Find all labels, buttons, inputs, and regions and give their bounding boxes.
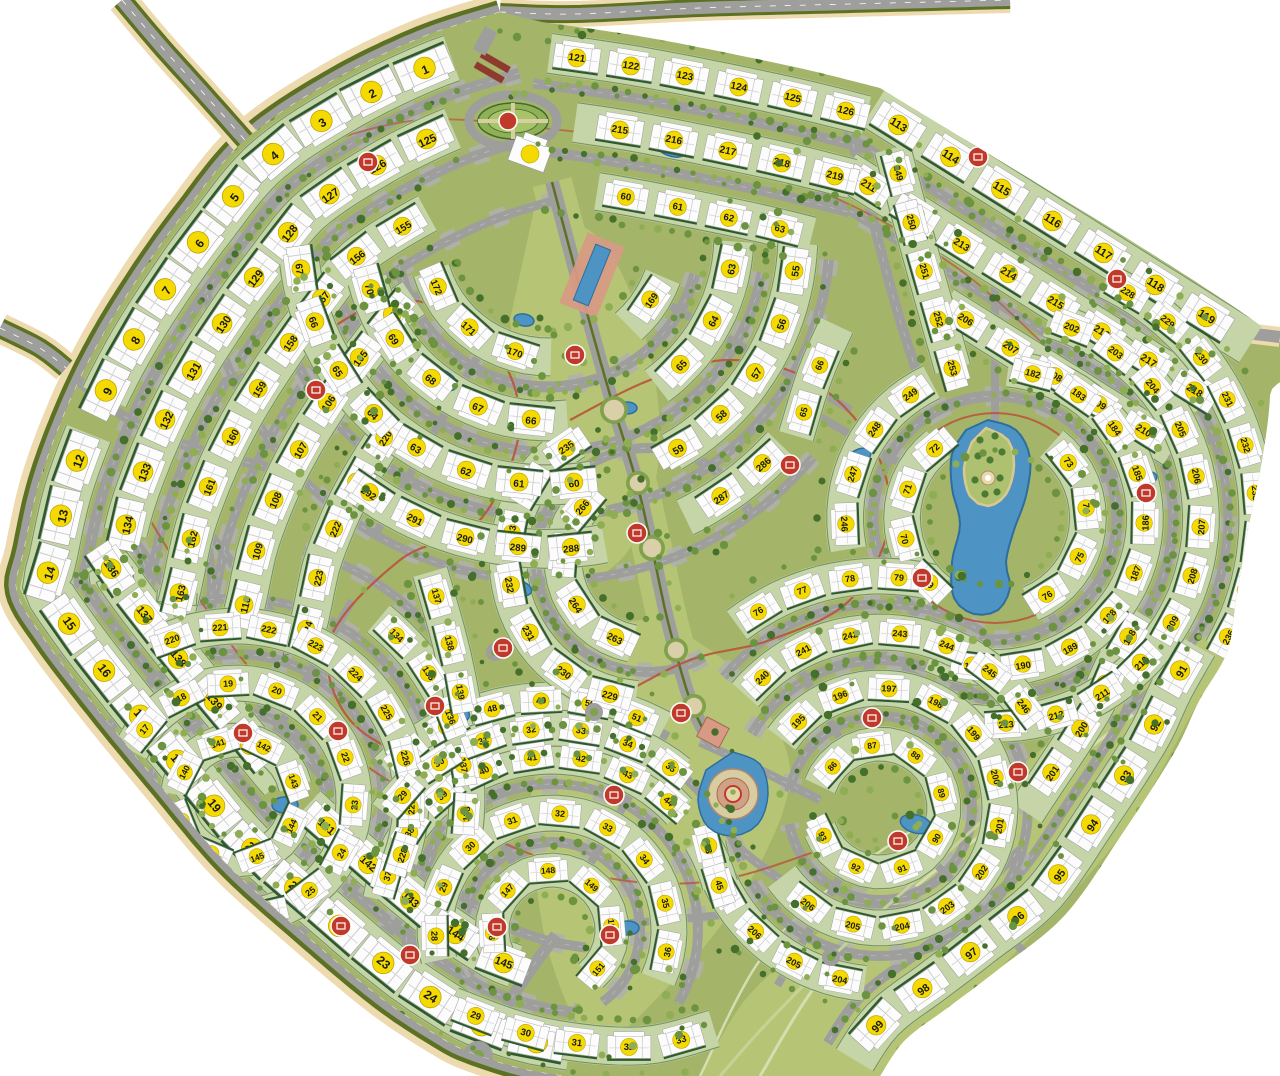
svg-text:221: 221 (212, 622, 228, 633)
svg-text:289: 289 (509, 542, 527, 555)
svg-text:79: 79 (894, 572, 905, 583)
svg-text:207: 207 (1196, 519, 1207, 535)
svg-text:36: 36 (662, 946, 674, 958)
svg-text:60: 60 (620, 191, 632, 204)
svg-text:31: 31 (571, 1037, 584, 1049)
svg-text:28: 28 (429, 931, 439, 941)
svg-text:55: 55 (790, 265, 803, 278)
svg-text:186: 186 (1141, 515, 1151, 531)
svg-text:148: 148 (541, 865, 556, 876)
svg-text:61: 61 (513, 478, 526, 490)
svg-text:62: 62 (722, 212, 735, 225)
svg-text:87: 87 (867, 740, 878, 751)
svg-text:66: 66 (525, 415, 538, 427)
svg-text:32: 32 (555, 808, 566, 819)
svg-text:78: 78 (844, 573, 855, 584)
svg-text:197: 197 (881, 683, 897, 694)
svg-text:246: 246 (839, 516, 850, 532)
svg-text:288: 288 (563, 543, 581, 556)
svg-text:19: 19 (223, 678, 234, 689)
svg-text:243: 243 (892, 628, 908, 639)
